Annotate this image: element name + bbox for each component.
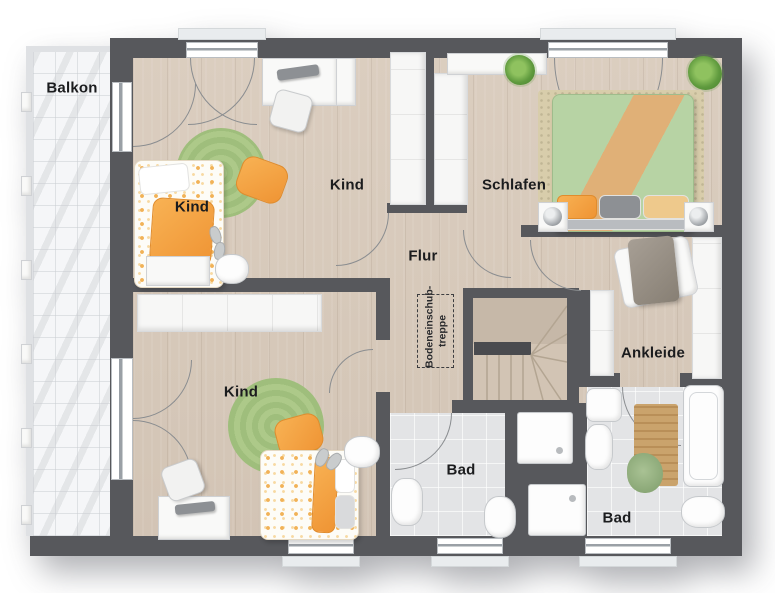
room-label-schlafen: Schlafen	[482, 177, 546, 194]
pillow	[138, 162, 191, 195]
wardrobe	[692, 237, 722, 379]
plant	[688, 56, 722, 90]
washbasin	[391, 478, 423, 526]
window-sill	[282, 556, 360, 567]
nightstand	[684, 202, 714, 232]
kids-table	[344, 436, 380, 468]
double-bed	[552, 94, 694, 232]
cabinet	[336, 58, 356, 106]
wall	[567, 288, 579, 405]
shower	[517, 412, 573, 464]
balcony-baluster	[21, 428, 32, 448]
toilet	[681, 496, 725, 528]
wardrobe	[390, 52, 426, 205]
pillow	[335, 495, 355, 529]
room-label-balkon: Balkon	[46, 80, 97, 97]
room-label-ankleide: Ankleide	[621, 345, 685, 362]
window	[437, 538, 503, 554]
bathtub	[683, 385, 724, 487]
pillow	[643, 195, 689, 219]
staircase	[473, 298, 567, 400]
washbasin	[585, 424, 613, 470]
window	[548, 42, 668, 58]
attic-stairs-box: Bodeneinschub- treppe	[417, 294, 454, 368]
wall	[463, 288, 577, 298]
window	[186, 42, 258, 58]
mattress-edge	[555, 219, 691, 230]
wardrobe	[137, 294, 322, 332]
lamp	[543, 207, 562, 226]
attic-stairs-line1: Bodeneinschub-	[423, 286, 435, 368]
plant	[505, 55, 535, 85]
clothes-pile	[627, 235, 680, 305]
attic-stairs-label: Bodeneinschub- treppe	[423, 294, 448, 368]
shower-drain	[556, 447, 563, 454]
bed	[260, 450, 359, 540]
shower-drain	[569, 495, 576, 502]
towel	[627, 453, 663, 493]
balcony-baluster	[21, 505, 32, 525]
bed-drawers	[146, 256, 210, 286]
wardrobe	[590, 290, 614, 376]
balcony-floor	[33, 52, 110, 536]
window-sill	[178, 28, 266, 40]
room-label-kind-c: Kind	[224, 384, 258, 401]
window-sill	[431, 556, 509, 567]
window-sill	[579, 556, 677, 567]
bath-cabinet	[586, 388, 622, 422]
balcony-baluster	[21, 344, 32, 364]
plan-sheet: Bodeneinschub- treppe Balkon Kind Kind S…	[0, 0, 775, 593]
room-label-kind-a: Kind	[175, 199, 209, 216]
kids-table	[215, 254, 249, 284]
balcony-door	[111, 358, 133, 480]
shower	[528, 484, 586, 536]
monitor	[276, 64, 319, 81]
attic-stairs-line2: treppe	[436, 315, 448, 347]
window-sill	[540, 28, 676, 40]
bathtub-basin	[689, 392, 718, 480]
window	[112, 82, 132, 152]
balcony-baluster	[21, 260, 32, 280]
wall	[376, 292, 390, 340]
window	[585, 538, 671, 554]
floor-plan-stage: Bodeneinschub- treppe Balkon Kind Kind S…	[0, 0, 775, 593]
wall	[376, 392, 390, 536]
window	[288, 538, 354, 554]
monitor	[175, 501, 216, 515]
wall	[722, 58, 742, 536]
room-label-bad-a: Bad	[447, 462, 476, 479]
nightstand	[538, 202, 568, 232]
lamp	[689, 207, 708, 226]
toilet	[484, 496, 516, 538]
wardrobe	[434, 73, 468, 205]
balcony-baluster	[21, 176, 32, 196]
room-label-kind-b: Kind	[330, 177, 364, 194]
room-label-bad-b: Bad	[603, 510, 632, 527]
room-label-flur: Flur	[408, 248, 437, 265]
balcony-baluster	[21, 92, 32, 112]
desk	[158, 496, 230, 540]
pillow	[599, 195, 641, 219]
wall	[463, 288, 473, 405]
